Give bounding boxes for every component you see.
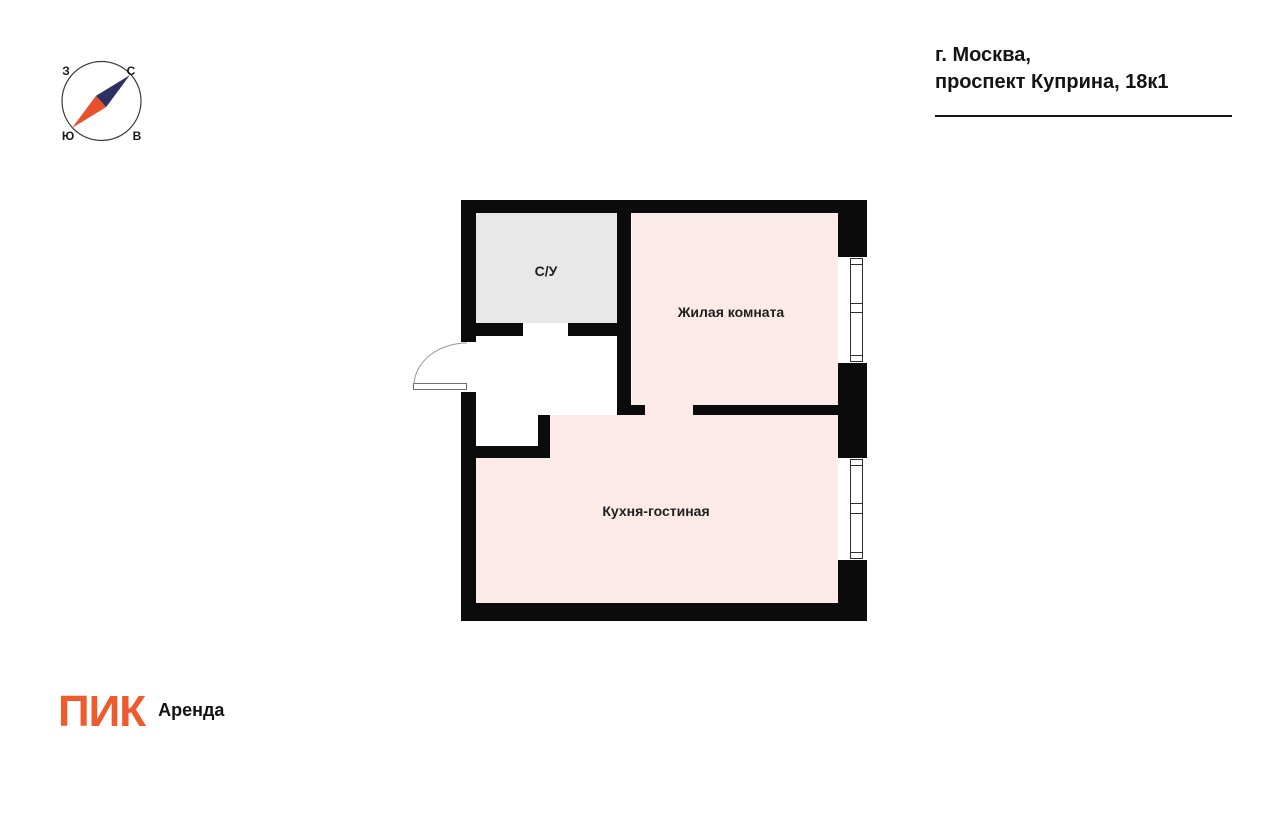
window-kitchen-icon — [851, 460, 863, 559]
wall-right-middle — [838, 363, 867, 458]
pik-logo: ПИК — [58, 690, 145, 734]
wall-top — [461, 200, 867, 213]
wall-bottom — [461, 603, 867, 621]
room-label-bathroom: С/У — [535, 263, 558, 279]
address-divider — [935, 115, 1232, 117]
room-opening-living-kitchen — [645, 405, 693, 415]
wall-hall-l-vertical — [538, 415, 550, 458]
address-line2: проспект Куприна, 18к1 — [935, 69, 1233, 96]
room-label-living-room: Жилая комната — [677, 304, 785, 320]
floorplan-page: З С Ю В г. Москва, проспект Куприна, 18к… — [0, 0, 1280, 821]
wall-left-lower — [461, 392, 476, 621]
floor-plan: С/У Жилая комната Кухня-гостиная — [405, 195, 875, 627]
compass-graphic: З С Ю В — [50, 50, 154, 154]
entrance-door-icon — [414, 343, 468, 390]
wall-living-kitchen — [693, 405, 838, 415]
compass-label-west: З — [62, 64, 70, 78]
wall-left-upper — [461, 200, 476, 342]
window-frame — [851, 460, 863, 559]
window-cap — [851, 553, 863, 559]
window-frame — [851, 259, 863, 362]
room-label-kitchen-living-room: Кухня-гостиная — [602, 503, 709, 519]
compass-label-east: В — [133, 129, 142, 143]
door-swing-arc — [414, 343, 467, 384]
wall-right-top — [838, 200, 867, 257]
wall-right-bottom — [838, 560, 867, 621]
window-cap — [851, 460, 863, 466]
wall-bathroom-bottom-left — [476, 323, 523, 336]
window-cap — [851, 259, 863, 265]
brand-product-label: Аренда — [158, 701, 224, 719]
brand-footer: ПИК Аренда — [58, 690, 224, 734]
address-line1: г. Москва, — [935, 42, 1233, 69]
wall-bathroom-bottom-right — [568, 323, 617, 336]
address-block: г. Москва, проспект Куприна, 18к1 — [935, 42, 1233, 117]
door-leaf — [414, 384, 467, 390]
compass-label-south: Ю — [62, 129, 74, 143]
compass-label-north: С — [127, 64, 136, 78]
window-living-room-icon — [851, 259, 863, 362]
wall-hall-living-divider — [617, 213, 631, 415]
compass-rose: З С Ю В — [50, 50, 154, 154]
wall-living-kitchen-stub — [617, 405, 645, 415]
window-cap — [851, 356, 863, 362]
